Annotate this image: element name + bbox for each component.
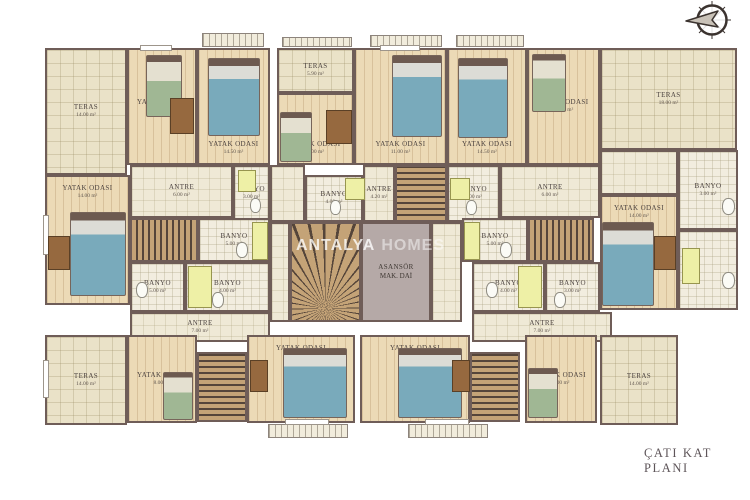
toilet-icon (722, 272, 735, 289)
room-name: YATAK ODASI (209, 140, 259, 149)
room-name: BANYO (214, 279, 241, 288)
desk-icon (326, 110, 352, 144)
room-name: ASANSÖR (378, 263, 413, 272)
balcony-icon (268, 424, 348, 438)
toilet-icon (250, 198, 261, 213)
room-stairs-e (528, 218, 594, 262)
room-area: 6.00 m² (537, 192, 562, 199)
room-hall-w (270, 165, 305, 222)
plan-title: ÇATI KAT PLANI (644, 446, 750, 476)
room-name: ANTRE (187, 319, 212, 328)
room-name: ANTRE (169, 183, 194, 192)
room-name: BANYO (144, 279, 171, 288)
room-antre-nw: ANTRE6.00 m² (130, 165, 233, 218)
desk-icon (452, 360, 470, 392)
floor-plan-page: TERAS14.00 m²YATAK ODASI11.60 m²YATAK OD… (0, 0, 750, 500)
room-name: YATAK ODASI (614, 204, 664, 213)
toilet-icon (500, 242, 512, 258)
room-name: BANYO (482, 232, 509, 241)
window-icon (43, 360, 49, 398)
room-name: ANTRE (529, 319, 554, 328)
toilet-icon (212, 292, 224, 308)
bed-green (163, 372, 193, 420)
toilet-icon (236, 242, 248, 258)
room-teras-nw: TERAS14.00 m² (45, 48, 127, 175)
room-name: TERAS (627, 372, 651, 381)
window-icon (425, 419, 469, 425)
room-name: ANTRE (366, 185, 391, 194)
room-area: MAK. DAİ (378, 272, 413, 281)
toilet-icon (554, 292, 566, 308)
room-name: YATAK ODASI (462, 140, 512, 149)
room-asansor: ASANSÖRMAK. DAİ (361, 222, 431, 322)
desk-icon (170, 98, 194, 134)
room-area: 14.00 m² (74, 112, 98, 119)
desk-icon (250, 360, 268, 392)
room-name: ANTRE (537, 183, 562, 192)
room-teras-ne: TERAS18.00 m² (600, 48, 737, 150)
room-area: 4.20 m² (366, 194, 391, 201)
toilet-icon (466, 200, 477, 215)
room-area: 5.90 m² (303, 71, 327, 78)
toilet-icon (486, 282, 498, 298)
room-teras-sw: TERAS14.00 m² (45, 335, 127, 425)
bed-blue (392, 55, 442, 137)
room-hall-e (431, 222, 462, 322)
window-icon (285, 419, 329, 425)
north-arrow-icon (683, 0, 743, 44)
room-stairs-main (290, 222, 361, 322)
room-name: BANYO (221, 232, 248, 241)
toilet-icon (330, 200, 341, 215)
shower-icon (682, 248, 700, 284)
bed-blue (458, 58, 508, 138)
shower-icon (518, 266, 542, 308)
room-stairs-sw (197, 352, 247, 422)
room-area: 14.50 m² (462, 149, 512, 156)
room-name: BANYO (695, 182, 722, 191)
floor-plan: TERAS14.00 m²YATAK ODASI11.60 m²YATAK OD… (0, 0, 750, 500)
bed-blue (283, 348, 347, 418)
shower-icon (345, 178, 365, 200)
room-name: TERAS (74, 103, 98, 112)
room-banyo-e-1: BANYO3.00 m² (678, 150, 738, 230)
room-name: BANYO (559, 279, 586, 288)
toilet-icon (136, 282, 148, 298)
balcony-icon (282, 37, 352, 47)
bed-green (532, 54, 566, 112)
room-area: 14.50 m² (209, 149, 259, 156)
room-area: 6.00 m² (169, 192, 194, 199)
room-stairs-c (395, 165, 447, 222)
bed-blue (70, 212, 126, 296)
bed-green (280, 112, 312, 162)
bed-green (528, 368, 558, 418)
room-hall-ne (600, 150, 678, 195)
room-teras-n: TERAS5.90 m² (277, 48, 354, 93)
window-icon (380, 45, 420, 51)
room-area: 14.00 m² (63, 193, 113, 200)
room-area: 14.00 m² (627, 381, 651, 388)
room-name: YATAK ODASI (63, 184, 113, 193)
room-antre-c: ANTRE4.20 m² (363, 165, 395, 222)
bed-blue (602, 222, 654, 306)
room-name: TERAS (656, 91, 680, 100)
desk-icon (48, 236, 70, 270)
room-name: TERAS (303, 62, 327, 71)
room-area: 3.00 m² (695, 191, 722, 198)
room-stairs-w (130, 218, 198, 262)
room-antre-ne: ANTRE6.00 m² (500, 165, 600, 218)
room-area: 11.00 m² (376, 149, 426, 156)
window-icon (140, 45, 172, 51)
shower-icon (238, 170, 256, 192)
room-stairs-se (470, 352, 520, 422)
bed-blue (208, 58, 260, 136)
room-teras-se: TERAS14.00 m² (600, 335, 678, 425)
room-area: 14.00 m² (74, 381, 98, 388)
room-area: 18.00 m² (656, 100, 680, 107)
room-banyo-se-2: BANYO3.00 m² (545, 262, 600, 312)
room-area: 14.00 m² (614, 213, 664, 220)
shower-icon (188, 266, 212, 308)
room-area: 5.00 m² (144, 288, 171, 295)
balcony-icon (202, 33, 264, 47)
room-name: YATAK ODASI (376, 140, 426, 149)
shower-icon (252, 222, 268, 260)
shower-icon (464, 222, 480, 260)
balcony-icon (456, 35, 524, 47)
room-name: TERAS (74, 372, 98, 381)
toilet-icon (722, 198, 735, 215)
shower-icon (450, 178, 470, 200)
balcony-icon (408, 424, 488, 438)
room-hall-c (270, 222, 290, 322)
desk-icon (654, 236, 676, 270)
room-name: BANYO (321, 190, 348, 199)
